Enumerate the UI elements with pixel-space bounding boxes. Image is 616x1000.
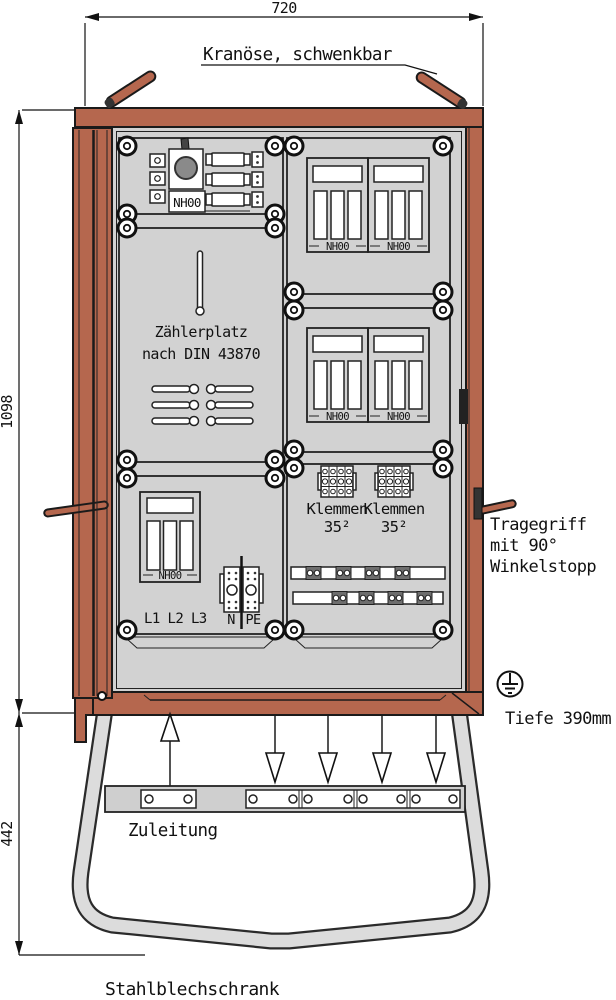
cable-clamp-plate [246, 790, 460, 808]
flow-arrow-down-icon [266, 753, 284, 782]
dim-arrow-right-icon [469, 13, 483, 21]
nh00-fuse-strip [368, 158, 429, 252]
nh00-fuse-strip [307, 158, 368, 252]
cabinet-height-label: 1098 [0, 395, 16, 429]
cable-entry-area: Zuleitung [105, 714, 465, 841]
fuse-strip-label: NH00 [387, 241, 410, 253]
flow-arrow-down-icon [427, 753, 445, 782]
nh00-fuse-strip [368, 328, 429, 422]
flow-arrow-down-icon [373, 753, 391, 782]
pe-label: PE [245, 612, 261, 628]
flow-arrows-down [266, 716, 445, 782]
screw-icon [285, 441, 303, 459]
cable-clamp-icon [395, 567, 410, 580]
screw-icon [285, 301, 303, 319]
terminal-label-line2: 35² [324, 518, 350, 536]
supply-label: Zuleitung [128, 821, 217, 841]
cabinet-drawing: 720 Kranöse, schwenkbar 1098 442 [0, 0, 616, 1000]
phase-labels: L1 L2 L3 [144, 611, 207, 627]
screw-icon [434, 459, 452, 477]
meter-label-line2: nach DIN 43870 [142, 345, 261, 363]
screw-icon [434, 441, 452, 459]
dim-arrow-up-icon [15, 110, 23, 124]
nh00-fuse-strip [307, 328, 368, 422]
base-height-label: 442 [0, 821, 16, 846]
dim-arrow-up2-icon [15, 713, 23, 727]
cable-clamp-icon [365, 567, 380, 580]
switch-fuse-label: NH00 [173, 195, 201, 210]
screw-icon [118, 469, 136, 487]
screw-icon [285, 621, 303, 639]
cable-clamp-icon [388, 592, 403, 605]
cable-clamp-icon [336, 567, 351, 580]
fuse-base-label: NH00 [159, 570, 182, 582]
roof [75, 108, 483, 127]
handle-annotation: Tragegriff mit 90° Winkelstopp [490, 515, 596, 577]
terminal-label-line1: Klemmen [306, 500, 367, 518]
n-pe-terminals: N PE [220, 556, 263, 629]
terminal-block [375, 466, 413, 497]
terminal-block [318, 466, 356, 497]
terminal-label-line2: 35² [381, 518, 407, 536]
screw-icon [285, 137, 303, 155]
fuse-cartridges [206, 153, 250, 206]
handle-label-line1: Tragegriff [490, 515, 586, 535]
handle-label-line2: mit 90° [490, 536, 557, 556]
screw-icon [118, 621, 136, 639]
screw-icon [118, 451, 136, 469]
screw-icon [434, 301, 452, 319]
meter-label-line1: Zählerplatz [155, 323, 248, 341]
door-latch [459, 389, 468, 424]
cable-clamp-icon [332, 592, 347, 605]
handle-bracket [474, 488, 482, 519]
switch-knob [175, 157, 197, 179]
door-bottom-hinge [75, 698, 93, 742]
screw-icon [266, 219, 284, 237]
cable-clamp-icon [417, 592, 432, 605]
cable-clamp-icon [306, 567, 321, 580]
fuse-strip-label: NH00 [326, 241, 349, 253]
neutral-label: N [227, 612, 235, 628]
screw-icon [266, 137, 284, 155]
screw-icon [434, 283, 452, 301]
fuse-strip-label: NH00 [326, 411, 349, 423]
fuse-strip-label: NH00 [387, 411, 410, 423]
screw-icon [118, 137, 136, 155]
screw-icon [285, 459, 303, 477]
technical-drawing-sheet: 720 Kranöse, schwenkbar 1098 442 [0, 0, 616, 1000]
screw-icon [266, 469, 284, 487]
screw-icon [118, 219, 136, 237]
screw-icon [266, 621, 284, 639]
dim-arrow-down-icon [15, 699, 23, 713]
flow-arrow-up-icon [161, 714, 179, 741]
pe-earth-symbol-icon [498, 672, 523, 697]
dim-arrow-down2-icon [15, 941, 23, 955]
flow-arrow-down-icon [319, 753, 337, 782]
handle-right [479, 500, 517, 515]
screw-icon [434, 621, 452, 639]
depth-label: Tiefe 390mm [505, 709, 611, 729]
dim-arrow-left-icon [85, 13, 99, 21]
crane-eye-label: Kranöse, schwenkbar [203, 45, 392, 65]
earth-annotation: Tiefe 390mm [498, 672, 612, 730]
width-dimension-label: 720 [271, 0, 297, 17]
handle-label-line3: Winkelstopp [490, 557, 596, 577]
screw-icon [434, 137, 452, 155]
crane-eye-callout: Kranöse, schwenkbar [201, 45, 437, 74]
cable-clamp-icon [359, 592, 374, 605]
door-hinge-pin [98, 692, 106, 700]
screw-icon [266, 451, 284, 469]
screw-icon [285, 283, 303, 301]
terminal-label-line1: Klemmen [363, 500, 424, 518]
drawing-title: Stahlblechschrank [105, 979, 280, 1000]
switch-terminal-dots [252, 152, 263, 207]
